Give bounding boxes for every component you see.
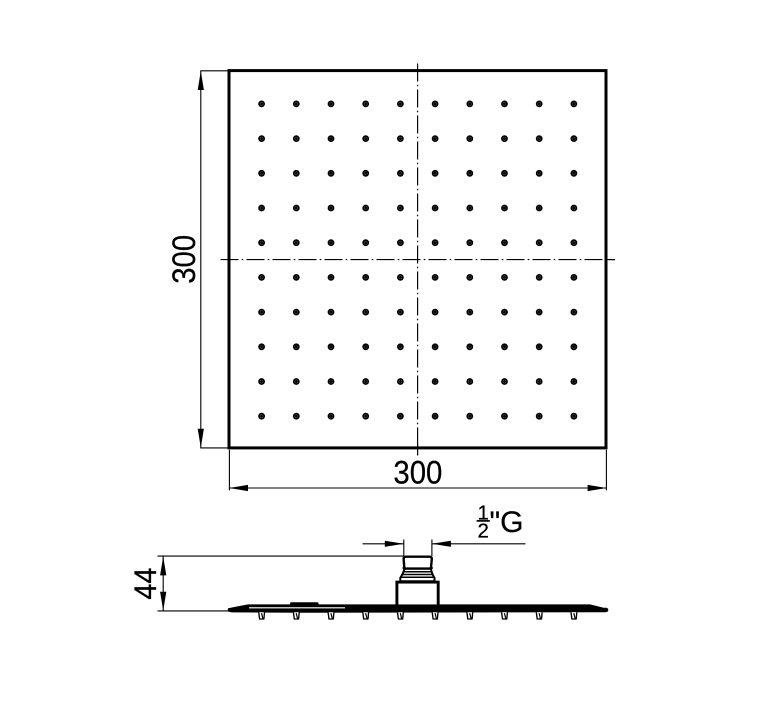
svg-text:300: 300 [166, 235, 202, 284]
svg-text:44: 44 [127, 568, 163, 600]
svg-text:2: 2 [477, 520, 488, 543]
svg-text:"G: "G [490, 506, 524, 539]
svg-text:300: 300 [393, 454, 442, 490]
